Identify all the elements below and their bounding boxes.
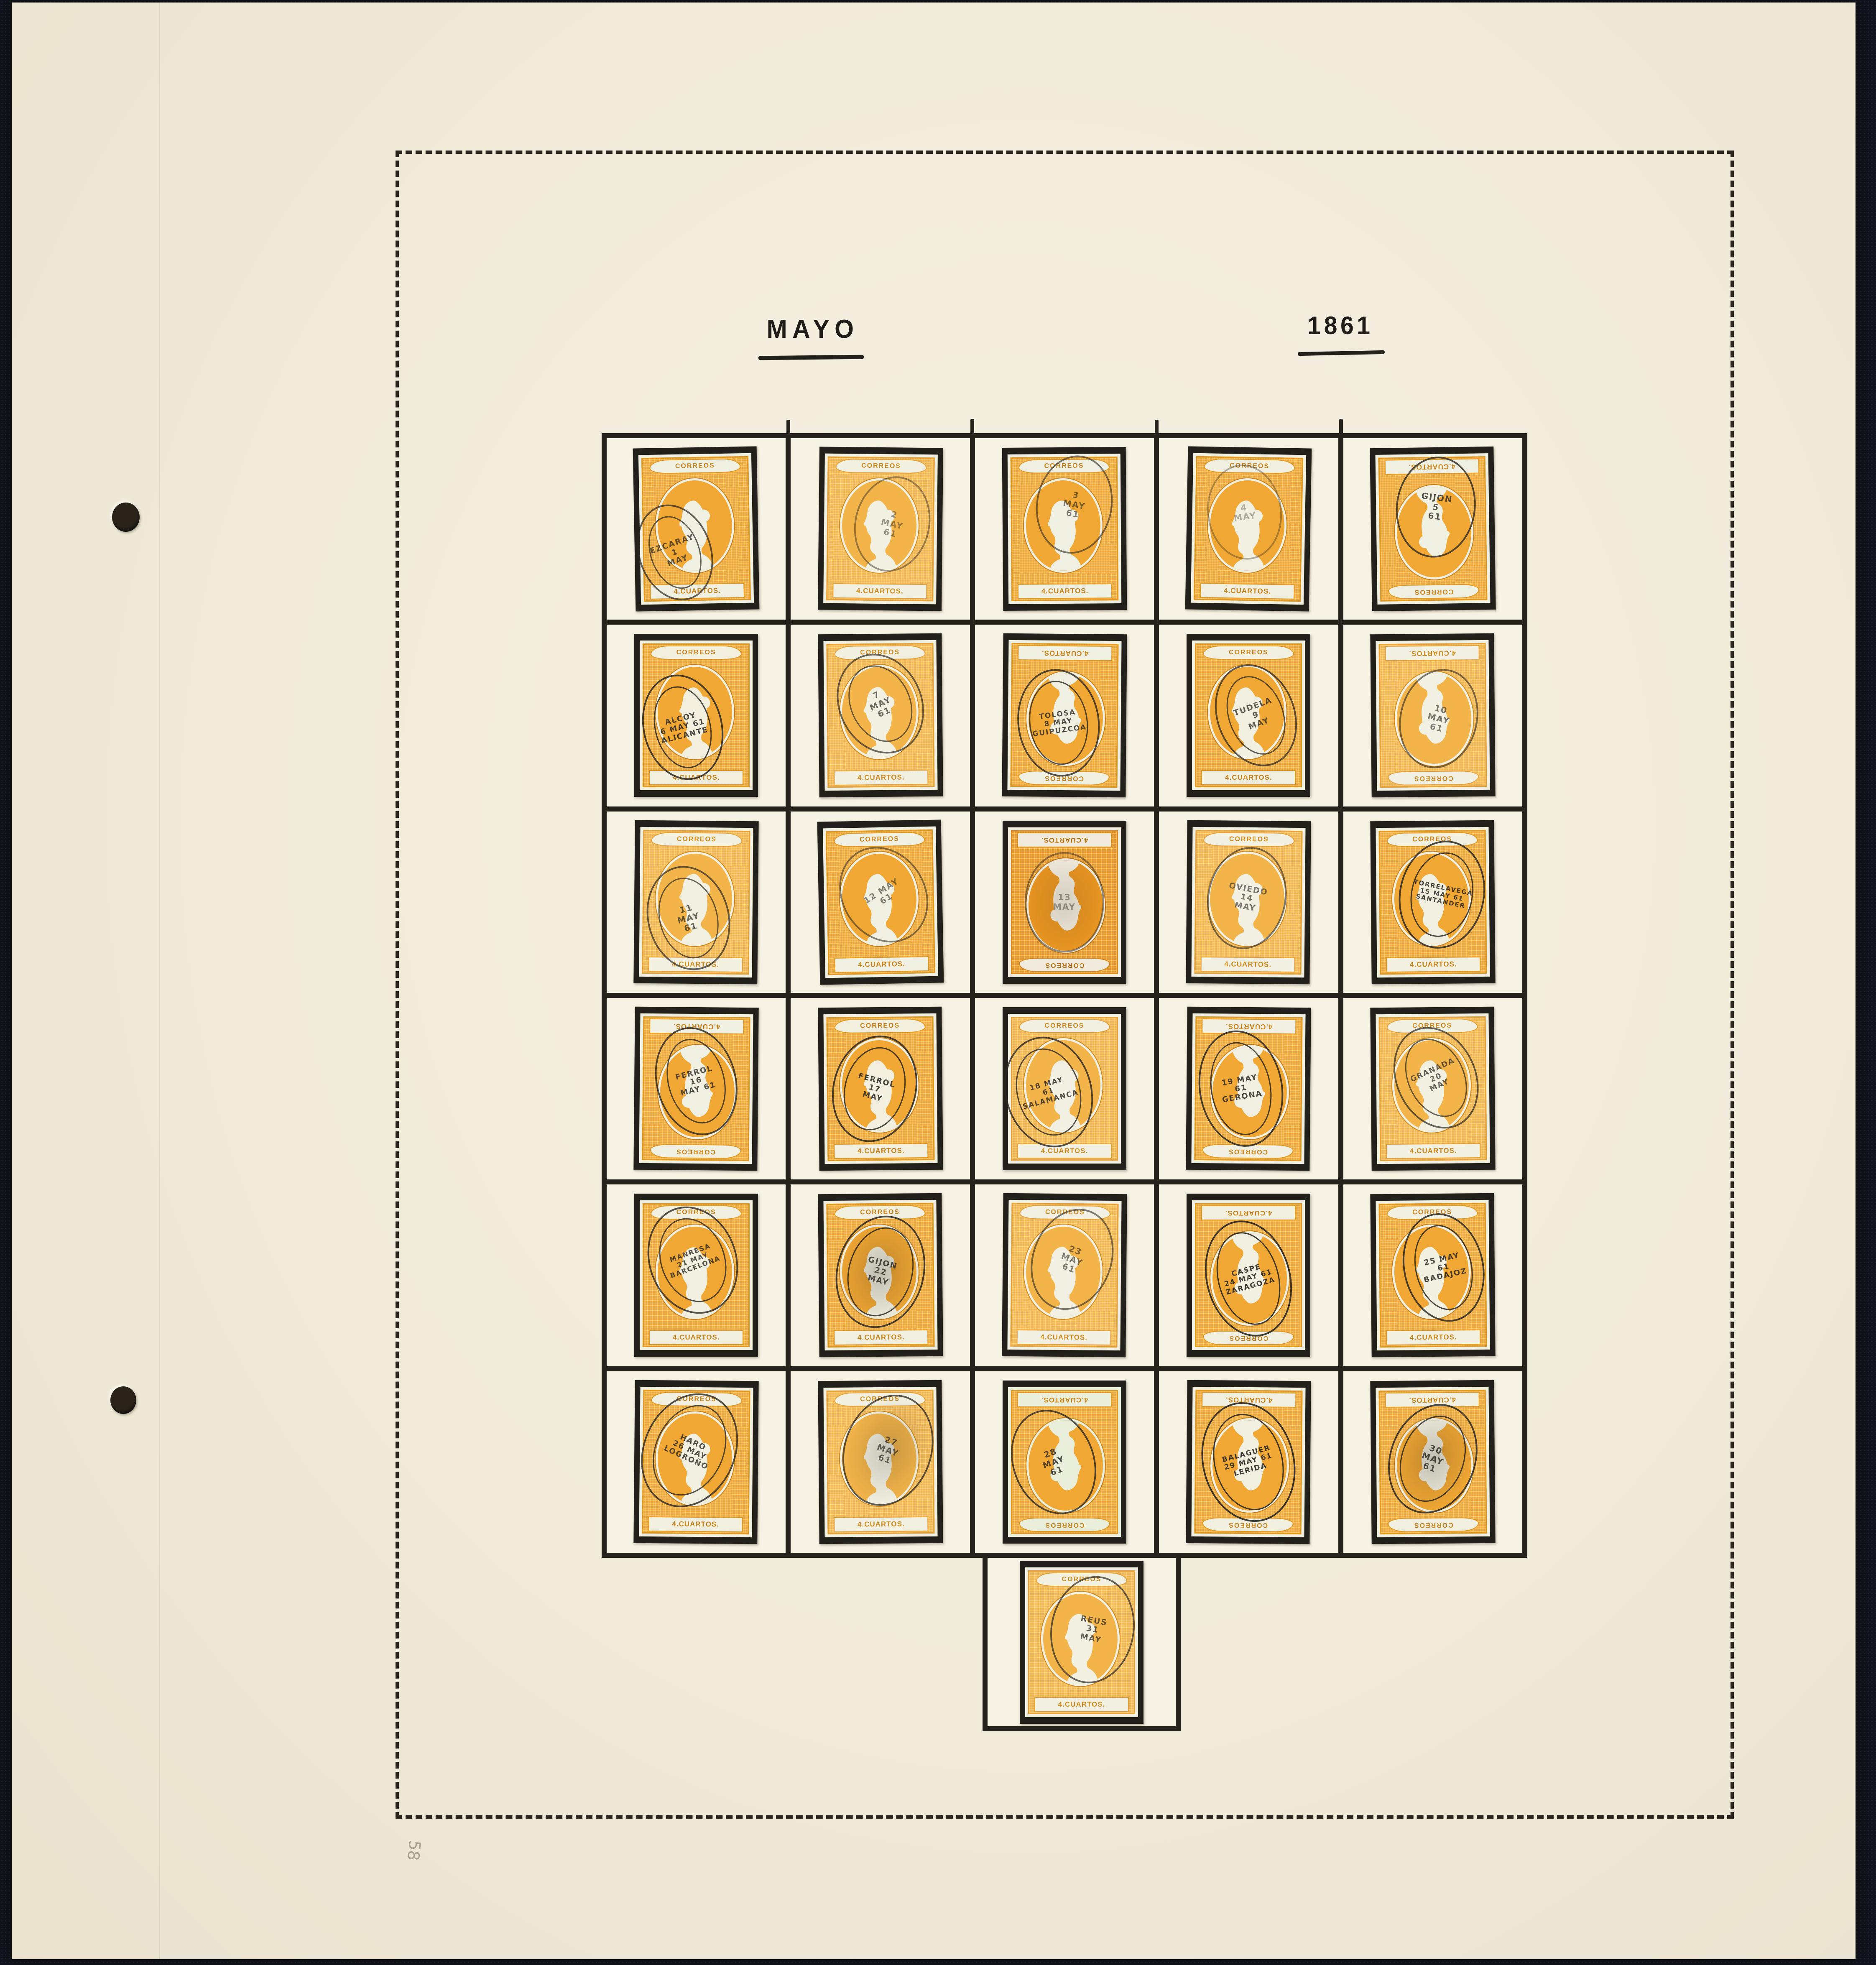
stamp-cell: CORREOS 4.CUARTOS. ALCOY6 MAY 61ALICANTE: [607, 625, 786, 806]
stamp-correos-label: CORREOS: [1229, 835, 1269, 843]
stamp-cell: CORREOS 4.CUARTOS. 19 MAY61GERONA: [1159, 998, 1338, 1179]
stamp-cell: CORREOS 4.CUARTOS. 27MAY61: [791, 1371, 970, 1553]
stamp: CORREOS 4.CUARTOS.: [639, 1013, 753, 1164]
stamp-correos-banner: CORREOS: [1388, 584, 1479, 600]
stamp-cell: CORREOS 4.CUARTOS. 25 MAY61BADAJOZ: [1343, 1184, 1522, 1366]
stamp-value-tablet: 4.CUARTOS.: [834, 956, 929, 973]
stamp-correos-banner: CORREOS: [1202, 1517, 1294, 1532]
stamp-correos-label: CORREOS: [676, 1209, 716, 1216]
stamp-value-tablet: 4.CUARTOS.: [1017, 1330, 1111, 1345]
stamp: CORREOS 4.CUARTOS.: [1376, 1200, 1490, 1350]
stamp-cell: CORREOS 4.CUARTOS. 2MAY61: [791, 438, 970, 620]
stamp-mount: CORREOS 4.CUARTOS. OVIEDO14MAY: [1186, 820, 1311, 985]
stamp-value-label: 4.CUARTOS.: [857, 1333, 904, 1342]
stamp-correos-label: CORREOS: [1414, 1521, 1453, 1529]
stamp-value-tablet: 4.CUARTOS.: [1018, 646, 1112, 661]
stamp-value-label: 4.CUARTOS.: [1409, 1395, 1456, 1404]
stamp-correos-label: CORREOS: [1062, 1576, 1102, 1583]
stamp-value-tablet: 4.CUARTOS.: [1200, 583, 1295, 600]
stamp-correos-label: CORREOS: [860, 1209, 900, 1217]
stamp-mount: CORREOS 4.CUARTOS. 4MAY: [1185, 447, 1312, 612]
stamp-value-tablet: 4.CUARTOS.: [1384, 459, 1479, 475]
stamp-cell: CORREOS 4.CUARTOS. TOLOSA8 MAYGUIPUZCOA: [975, 625, 1154, 806]
stamp-correos-banner: CORREOS: [1019, 1205, 1110, 1220]
stamp-correos-label: CORREOS: [1229, 1334, 1269, 1342]
stamp-correos-banner: CORREOS: [651, 832, 742, 847]
stamp-correos-banner: CORREOS: [1019, 958, 1110, 972]
stamp: CORREOS 4.CUARTOS.: [823, 1200, 937, 1350]
stamp-value-label: 4.CUARTOS.: [1408, 462, 1455, 471]
stamp-value-tablet: 4.CUARTOS.: [649, 1018, 744, 1034]
queen-isabel-profile-icon: [1218, 860, 1277, 944]
binder-hole-top: [112, 503, 140, 532]
stamp-mount: CORREOS 4.CUARTOS. TORRELAVEGA15 MAY 61S…: [1370, 820, 1495, 985]
stamp-cell: CORREOS 4.CUARTOS. 18 MAY61SALAMANCA: [975, 998, 1154, 1179]
queen-isabel-profile-icon: [1405, 674, 1464, 757]
stamp-correos-label: CORREOS: [1045, 1209, 1085, 1217]
stamp: CORREOS 4.CUARTOS.: [638, 453, 754, 605]
stamp-value-label: 4.CUARTOS.: [1225, 1395, 1273, 1404]
stamp-correos-banner: CORREOS: [1386, 832, 1478, 847]
stamp: CORREOS 4.CUARTOS.: [1376, 640, 1490, 791]
stamp: CORREOS 4.CUARTOS.: [640, 641, 753, 790]
stamp-portrait-oval: [840, 1038, 919, 1133]
stamp-correos-label: CORREOS: [1412, 1209, 1452, 1217]
stamp-value-label: 4.CUARTOS.: [1041, 1396, 1088, 1404]
queen-isabel-profile-icon: [850, 1047, 909, 1131]
stamp-correos-label: CORREOS: [1228, 1521, 1268, 1529]
queen-isabel-profile-icon: [665, 487, 725, 571]
stamp-value-tablet: 4.CUARTOS.: [1017, 832, 1112, 847]
stamp-correos-banner: CORREOS: [1203, 646, 1294, 660]
stamp: CORREOS 4.CUARTOS.: [1376, 827, 1490, 977]
stamp-correos-banner: CORREOS: [1018, 771, 1110, 786]
stamp-value-tablet: 4.CUARTOS.: [1017, 1143, 1112, 1159]
stamp-value-label: 4.CUARTOS.: [1410, 960, 1457, 969]
stamp-correos-banner: CORREOS: [1036, 1572, 1127, 1587]
stamp-cell: CORREOS 4.CUARTOS. 3MAY61: [975, 438, 1154, 620]
stamp-cell: CORREOS 4.CUARTOS. GRANADA20MAY: [1343, 998, 1522, 1179]
stamp-portrait-oval: [1394, 671, 1474, 767]
stamp-cell: CORREOS 4.CUARTOS. 12 MAY61: [791, 812, 970, 993]
stamp-mount: CORREOS 4.CUARTOS. REUS31MAY: [1020, 1561, 1143, 1724]
stamp-mount: CORREOS 4.CUARTOS. 18 MAY61SALAMANCA: [1003, 1007, 1126, 1170]
stamp-correos-label: CORREOS: [1412, 835, 1452, 843]
stamp: CORREOS 4.CUARTOS.: [823, 1387, 937, 1537]
stamp: CORREOS 4.CUARTOS.: [822, 826, 938, 978]
stamp-cell: CORREOS 4.CUARTOS. REUS31MAY: [988, 1558, 1176, 1726]
stamp-correos-banner: CORREOS: [834, 1205, 925, 1220]
stamp-correos-banner: CORREOS: [1202, 1144, 1294, 1159]
stamp-correos-banner: CORREOS: [835, 459, 927, 474]
stamp-value-tablet: 4.CUARTOS.: [832, 583, 927, 599]
queen-isabel-profile-icon: [1036, 674, 1095, 757]
queen-isabel-profile-icon: [1037, 860, 1095, 944]
stamp-correos-label: CORREOS: [859, 835, 899, 844]
queen-isabel-profile-icon: [850, 1421, 909, 1504]
stamp-correos-label: CORREOS: [1045, 1022, 1085, 1030]
queen-isabel-profile-icon: [1402, 1047, 1461, 1131]
stamp-portrait-oval: [1392, 1225, 1471, 1320]
stamp-mount: CORREOS 4.CUARTOS. GIJON22MAY: [818, 1193, 943, 1358]
stamp-value-label: 4.CUARTOS.: [1225, 773, 1272, 782]
stamp-value-tablet: 4.CUARTOS.: [1017, 1392, 1112, 1407]
stamp-value-label: 4.CUARTOS.: [673, 1333, 720, 1342]
stamp: CORREOS 4.CUARTOS.: [640, 1200, 753, 1350]
stamp-mount: CORREOS 4.CUARTOS. 10MAY61: [1370, 633, 1495, 798]
stamp-mount: CORREOS 4.CUARTOS. 23MAY61: [1002, 1193, 1127, 1358]
queen-isabel-profile-icon: [666, 1420, 725, 1504]
stamp: CORREOS 4.CUARTOS.: [1025, 1567, 1138, 1717]
stamp-correos-label: CORREOS: [1045, 961, 1085, 969]
stamp-value-tablet: 4.CUARTOS.: [650, 583, 745, 600]
stamp-value-label: 4.CUARTOS.: [672, 960, 719, 969]
stamp-portrait-oval: [1026, 1418, 1105, 1513]
stamp-mount: CORREOS 4.CUARTOS. BALAGUER29 MAY 61LERI…: [1186, 1380, 1311, 1544]
month-title: MAYO: [762, 314, 863, 344]
stamp-portrait-oval: [1024, 1038, 1103, 1133]
stamp-correos-banner: CORREOS: [1203, 1331, 1294, 1345]
queen-isabel-profile-icon: [666, 1234, 724, 1317]
stamp-cell: CORREOS 4.CUARTOS. MANRESA21 MAYBARCELON…: [607, 1184, 786, 1366]
stamp: CORREOS 4.CUARTOS.: [1008, 827, 1121, 977]
stamp-portrait-oval: [1392, 1038, 1471, 1133]
stamp-portrait-oval: [839, 478, 919, 573]
stamp-correos-label: CORREOS: [1412, 1022, 1452, 1030]
queen-isabel-profile-icon: [850, 1234, 909, 1317]
stamp: CORREOS 4.CUARTOS.: [639, 827, 753, 977]
stamp-mount: CORREOS 4.CUARTOS. 19 MAY61GERONA: [1186, 1007, 1311, 1171]
stamp-value-label: 4.CUARTOS.: [856, 587, 904, 596]
stamp-portrait-oval: [1394, 1418, 1474, 1513]
stamp-mount: CORREOS 4.CUARTOS. FERROL17MAY: [818, 1007, 943, 1171]
stamp-correos-label: CORREOS: [677, 835, 717, 843]
stamp-cell: CORREOS 4.CUARTOS. 13MAY: [975, 812, 1154, 993]
stamp-cell: CORREOS 4.CUARTOS. TORRELAVEGA15 MAY 61S…: [1343, 812, 1522, 993]
stamp-cell: CORREOS 4.CUARTOS. GIJON561: [1343, 438, 1522, 620]
stamp-cell: CORREOS 4.CUARTOS. CASPE24 MAY 61ZARAGOZ…: [1159, 1184, 1338, 1366]
page-crease: [159, 3, 160, 1959]
stamp: CORREOS 4.CUARTOS.: [1192, 641, 1305, 790]
stamp-mount: CORREOS 4.CUARTOS. FERROL16MAY 61: [633, 1007, 758, 1171]
queen-isabel-profile-icon: [666, 860, 725, 944]
stamp-mount: CORREOS 4.CUARTOS. 3MAY61: [1002, 447, 1127, 611]
pencil-note: 58: [404, 1840, 424, 1862]
stamp-value-label: 4.CUARTOS.: [673, 1022, 720, 1031]
stamp-portrait-oval: [656, 665, 734, 759]
stamp-value-tablet: 4.CUARTOS.: [1386, 1330, 1480, 1345]
queen-isabel-profile-icon: [666, 674, 724, 758]
stamp-correos-banner: CORREOS: [1204, 832, 1295, 847]
stamp-correos-banner: CORREOS: [649, 458, 741, 474]
stamp-value-label: 4.CUARTOS.: [1225, 1022, 1273, 1031]
stamp-portrait-oval: [1208, 665, 1286, 759]
stamp-value-tablet: 4.CUARTOS.: [649, 1330, 743, 1345]
stamp-value-tablet: 4.CUARTOS.: [649, 770, 743, 785]
stamp-correos-banner: CORREOS: [834, 1018, 925, 1034]
stamp: CORREOS 4.CUARTOS.: [1191, 453, 1306, 605]
stamp-grid: CORREOS 4.CUARTOS. EZCARAY1MAY CORRE: [602, 433, 1527, 1558]
stamp-correos-banner: CORREOS: [1204, 458, 1296, 474]
stamp: CORREOS 4.CUARTOS.: [1008, 454, 1121, 604]
stamp-value-label: 4.CUARTOS.: [1410, 1333, 1457, 1342]
queen-isabel-profile-icon: [1034, 1047, 1092, 1131]
stamp: CORREOS 4.CUARTOS.: [1376, 1387, 1490, 1537]
stamp-cell: CORREOS 4.CUARTOS. HARO26 MAYLOGROÑO: [607, 1371, 786, 1553]
stamp-correos-label: CORREOS: [676, 649, 716, 656]
stamp: CORREOS 4.CUARTOS.: [1375, 453, 1490, 605]
queen-isabel-profile-icon: [1404, 487, 1464, 571]
queen-isabel-profile-icon: [1037, 1420, 1095, 1503]
stamp-correos-label: CORREOS: [1414, 774, 1453, 782]
stamp-mount: CORREOS 4.CUARTOS. MANRESA21 MAYBARCELON…: [634, 1194, 758, 1357]
stamp: CORREOS 4.CUARTOS.: [823, 454, 938, 605]
year-title: 1861: [1296, 311, 1385, 340]
stamp-correos-label: CORREOS: [860, 649, 900, 657]
stamp-correos-label: CORREOS: [860, 1395, 900, 1403]
stamp-value-tablet: 4.CUARTOS.: [834, 1330, 928, 1345]
stamp-correos-label: CORREOS: [1228, 1148, 1268, 1156]
stamp-mount: CORREOS 4.CUARTOS. 12 MAY61: [817, 819, 944, 985]
stamp-mount: CORREOS 4.CUARTOS. CASPE24 MAY 61ZARAGOZ…: [1187, 1194, 1310, 1357]
queen-isabel-profile-icon: [1220, 1420, 1279, 1503]
stamp-correos-label: CORREOS: [1045, 1521, 1085, 1529]
stamp-correos-banner: CORREOS: [1388, 771, 1479, 786]
stamp-correos-label: CORREOS: [1414, 587, 1453, 595]
stamp-value-label: 4.CUARTOS.: [673, 773, 720, 782]
stamp-value-tablet: 4.CUARTOS.: [1385, 646, 1479, 661]
stamp-correos-banner: CORREOS: [1388, 1517, 1479, 1532]
stamp-correos-banner: CORREOS: [651, 646, 742, 660]
stamp-portrait-oval: [1392, 851, 1471, 947]
stamp-correos-banner: CORREOS: [651, 1205, 742, 1220]
stamp: CORREOS 4.CUARTOS.: [1192, 1013, 1306, 1164]
stamp-correos-banner: CORREOS: [834, 832, 925, 847]
stamp-correos-label: CORREOS: [1044, 462, 1084, 470]
stamp: CORREOS 4.CUARTOS.: [1007, 1200, 1121, 1350]
stamp-correos-label: CORREOS: [677, 1395, 717, 1403]
stamp-value-tablet: 4.CUARTOS.: [1385, 1392, 1479, 1408]
grid-line-stub: [1339, 419, 1343, 435]
queen-isabel-profile-icon: [1402, 1234, 1461, 1317]
stamp-correos-label: CORREOS: [676, 1148, 715, 1156]
queen-isabel-profile-icon: [1221, 1233, 1279, 1317]
stamp-portrait-oval: [656, 1225, 734, 1319]
stamp-value-label: 4.CUARTOS.: [674, 587, 721, 596]
stamp-mount: CORREOS 4.CUARTOS. GRANADA20MAY: [1370, 1007, 1495, 1171]
stamp-value-label: 4.CUARTOS.: [857, 1147, 904, 1156]
stamp-correos-banner: CORREOS: [1018, 459, 1110, 474]
stamp-correos-label: CORREOS: [1044, 774, 1084, 782]
stamp: CORREOS 4.CUARTOS.: [1192, 827, 1306, 977]
stamp-correos-banner: CORREOS: [1019, 1019, 1110, 1033]
stamp-value-tablet: 4.CUARTOS.: [834, 770, 928, 786]
stamp-mount: CORREOS 4.CUARTOS. 11MAY61: [633, 820, 758, 985]
stamp-mount: CORREOS 4.CUARTOS. EZCARAY1MAY: [633, 447, 760, 612]
stamp-mount: CORREOS 4.CUARTOS. 13MAY: [1003, 821, 1126, 984]
stamp-portrait-oval: [840, 1411, 919, 1506]
stamp-value-label: 4.CUARTOS.: [1041, 836, 1088, 844]
stamp-correos-banner: CORREOS: [1386, 1205, 1478, 1220]
queen-isabel-profile-icon: [850, 674, 909, 758]
stamp-cell: CORREOS 4.CUARTOS. 10MAY61: [1343, 625, 1522, 806]
stamp-value-label: 4.CUARTOS.: [857, 773, 904, 782]
stamp: CORREOS 4.CUARTOS.: [1007, 640, 1121, 791]
stamp-value-label: 4.CUARTOS.: [857, 1520, 904, 1529]
queen-isabel-profile-icon: [1220, 1047, 1279, 1131]
stamp-correos-banner: CORREOS: [834, 1392, 925, 1407]
queen-isabel-profile-icon: [1217, 487, 1277, 571]
stamp: CORREOS 4.CUARTOS.: [1192, 1387, 1306, 1537]
stamp-mount: CORREOS 4.CUARTOS. HARO26 MAYLOGROÑO: [633, 1380, 758, 1544]
stamp-mount: CORREOS 4.CUARTOS. 2MAY61: [818, 447, 943, 611]
stamp-mount: CORREOS 4.CUARTOS. 27MAY61: [818, 1380, 943, 1544]
stamp: CORREOS 4.CUARTOS.: [1376, 1013, 1490, 1164]
queen-isabel-profile-icon: [1052, 1601, 1110, 1684]
stamp-value-tablet: 4.CUARTOS.: [834, 1143, 928, 1159]
stamp-value-tablet: 4.CUARTOS.: [648, 1516, 743, 1532]
stamp-value-label: 4.CUARTOS.: [1409, 649, 1456, 658]
stamp-value-label: 4.CUARTOS.: [1225, 1209, 1272, 1217]
stamp-value-label: 4.CUARTOS.: [858, 960, 905, 969]
stamp-value-tablet: 4.CUARTOS.: [1018, 583, 1112, 599]
stamp-value-tablet: 4.CUARTOS.: [1386, 1143, 1480, 1159]
stamp-correos-banner: CORREOS: [1386, 1018, 1478, 1034]
stamp-cell: CORREOS 4.CUARTOS. 11MAY61: [607, 812, 786, 993]
stamp-value-label: 4.CUARTOS.: [1041, 1147, 1088, 1155]
queen-isabel-profile-icon: [1405, 1420, 1464, 1503]
stamp-value-tablet: 4.CUARTOS.: [1201, 770, 1296, 785]
stamp-grid-bottom-cell: CORREOS 4.CUARTOS. REUS31MAY: [983, 1553, 1181, 1731]
stamp: CORREOS 4.CUARTOS.: [1192, 1200, 1305, 1350]
queen-isabel-profile-icon: [1034, 487, 1092, 571]
stamp-correos-banner: CORREOS: [1019, 1518, 1110, 1532]
stamp-mount: CORREOS 4.CUARTOS. ALCOY6 MAY 61ALICANTE: [634, 634, 758, 797]
stamp-cell: CORREOS 4.CUARTOS. 7MAY61: [791, 625, 970, 806]
stamp-value-label: 4.CUARTOS.: [1041, 649, 1089, 658]
stamp-portrait-oval: [1041, 1592, 1120, 1686]
stamp-correos-label: CORREOS: [675, 462, 715, 470]
stamp: CORREOS 4.CUARTOS.: [1008, 1014, 1121, 1164]
stamp-portrait-oval: [1026, 858, 1105, 953]
stamp-correos-label: CORREOS: [1230, 462, 1269, 470]
stamp-value-label: 4.CUARTOS.: [1058, 1700, 1105, 1709]
stamp-portrait-oval: [1024, 478, 1103, 573]
stamp-correos-banner: CORREOS: [650, 1144, 741, 1159]
stamp-mount: CORREOS 4.CUARTOS. 30MAY61: [1370, 1380, 1495, 1544]
stamp-cell: CORREOS 4.CUARTOS. OVIEDO14MAY: [1159, 812, 1338, 993]
stamp: CORREOS 4.CUARTOS.: [823, 640, 937, 791]
stamp-correos-banner: CORREOS: [834, 646, 925, 661]
stamp-cell: CORREOS 4.CUARTOS. GIJON22MAY: [791, 1184, 970, 1366]
stamp-correos-label: CORREOS: [861, 462, 901, 470]
stamp-mount: CORREOS 4.CUARTOS. 7MAY61: [818, 633, 943, 798]
stamp-mount: CORREOS 4.CUARTOS. 28MAY61: [1003, 1381, 1126, 1544]
stamp-correos-label: CORREOS: [1229, 649, 1269, 656]
stamp-cell: CORREOS 4.CUARTOS. 30MAY61: [1343, 1371, 1522, 1553]
stamp: CORREOS 4.CUARTOS.: [823, 1013, 937, 1164]
stamp-value-tablet: 4.CUARTOS.: [1201, 957, 1295, 972]
queen-isabel-profile-icon: [1402, 861, 1461, 944]
queen-isabel-profile-icon: [1034, 1234, 1093, 1317]
stamp-correos-banner: CORREOS: [651, 1392, 742, 1407]
binder-hole-bottom: [110, 1386, 136, 1414]
stamp-mount: CORREOS 4.CUARTOS. TOLOSA8 MAYGUIPUZCOA: [1002, 633, 1127, 798]
stamp-cell: CORREOS 4.CUARTOS. EZCARAY1MAY: [607, 438, 786, 620]
stamp: CORREOS 4.CUARTOS.: [1008, 1387, 1121, 1537]
stamp-portrait-oval: [840, 665, 919, 760]
stamp-cell: CORREOS 4.CUARTOS. 28MAY61: [975, 1371, 1154, 1553]
stamp-value-label: 4.CUARTOS.: [1410, 1147, 1457, 1156]
stamp-value-tablet: 4.CUARTOS.: [1034, 1697, 1129, 1712]
stamp-cell: CORREOS 4.CUARTOS. TUDELA9MAY: [1159, 625, 1338, 806]
stamp-cell: CORREOS 4.CUARTOS. BALAGUER29 MAY 61LERI…: [1159, 1371, 1338, 1553]
stamp-cell: CORREOS 4.CUARTOS. 23MAY61: [975, 1184, 1154, 1366]
stamp-value-tablet: 4.CUARTOS.: [648, 957, 743, 972]
queen-isabel-profile-icon: [668, 1047, 727, 1131]
stamp-value-tablet: 4.CUARTOS.: [1202, 1392, 1297, 1408]
stamp-mount: CORREOS 4.CUARTOS. TUDELA9MAY: [1187, 634, 1310, 797]
stamp-value-tablet: 4.CUARTOS.: [1201, 1205, 1296, 1220]
stamp-value-tablet: 4.CUARTOS.: [1386, 957, 1480, 972]
stamp-value-label: 4.CUARTOS.: [1224, 587, 1271, 596]
album-page: MAYO 1861 CORREOS 4.CUARTOS.: [12, 3, 1856, 1959]
stamp-value-label: 4.CUARTOS.: [672, 1520, 719, 1529]
stamp-mount: CORREOS 4.CUARTOS. GIJON561: [1370, 447, 1496, 611]
stamp-value-label: 4.CUARTOS.: [1041, 587, 1089, 596]
queen-isabel-profile-icon: [849, 860, 909, 944]
stamp-correos-label: CORREOS: [860, 1022, 900, 1030]
stamp-value-label: 4.CUARTOS.: [1225, 960, 1272, 969]
stamp-value-tablet: 4.CUARTOS.: [834, 1516, 928, 1532]
stamp-portrait-oval: [840, 1225, 919, 1320]
stamp-cell: CORREOS 4.CUARTOS. FERROL16MAY 61: [607, 998, 786, 1179]
grid-line-stub: [970, 419, 974, 435]
stamp-cell: CORREOS 4.CUARTOS. FERROL17MAY: [791, 998, 970, 1179]
stamp-cell: CORREOS 4.CUARTOS. 4MAY: [1159, 438, 1338, 620]
queen-isabel-profile-icon: [1218, 674, 1276, 758]
stamp: CORREOS 4.CUARTOS.: [639, 1387, 753, 1537]
queen-isabel-profile-icon: [850, 487, 909, 571]
stamp-value-tablet: 4.CUARTOS.: [1202, 1018, 1297, 1034]
stamp-value-label: 4.CUARTOS.: [1040, 1333, 1087, 1342]
stamp-portrait-oval: [1210, 1231, 1289, 1326]
stamp-mount: CORREOS 4.CUARTOS. 25 MAY61BADAJOZ: [1370, 1193, 1495, 1358]
